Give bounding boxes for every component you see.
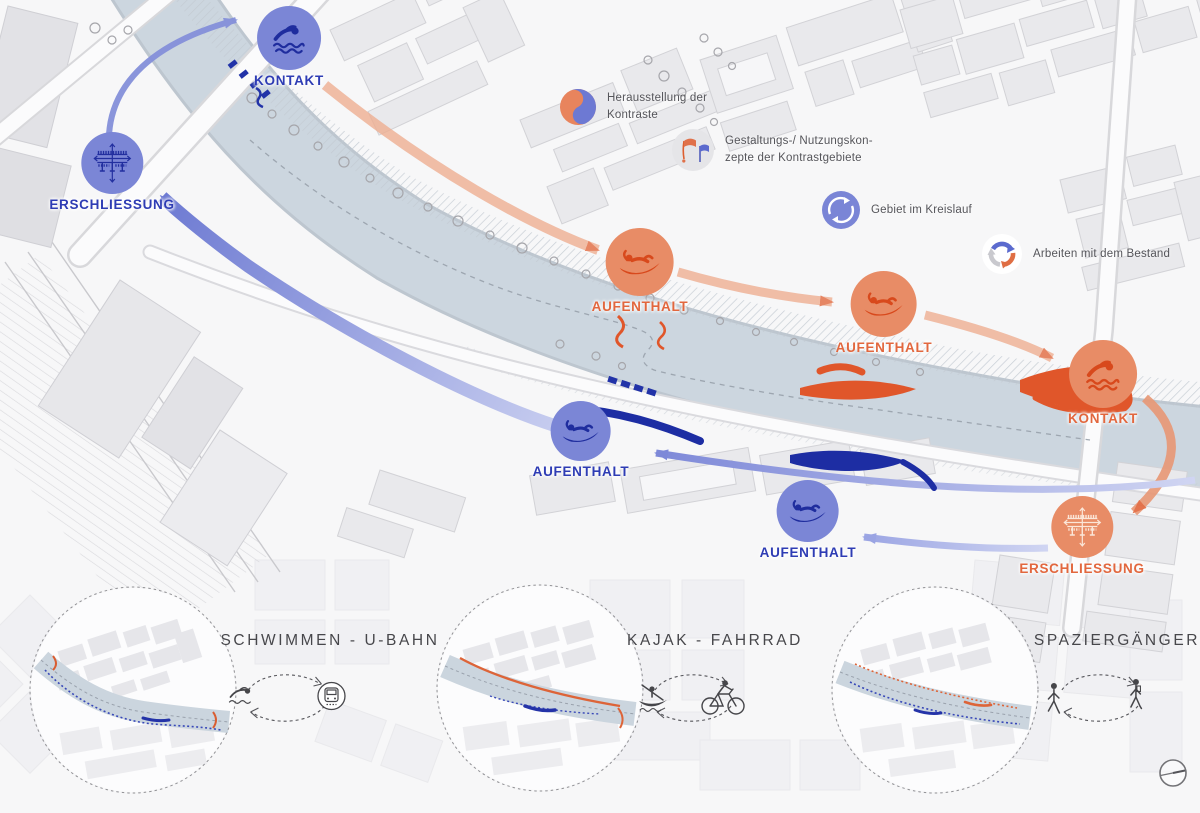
lounger-icon (862, 285, 906, 323)
node-label: AUFENTHALT (533, 464, 630, 479)
legend-text: Gestaltungs-/ Nutzungskon-zepte der Kont… (725, 133, 873, 166)
bridge-icon (90, 141, 134, 185)
node-aufenthalt-orange-2: AUFENTHALT (836, 271, 933, 355)
flags-icon (670, 127, 716, 173)
pair-label: KAJAK - FAHRRAD (627, 632, 803, 650)
node-label: ERSCHLIESSUNG (49, 197, 174, 212)
lounger-icon (617, 242, 663, 282)
swimmer-icon (269, 18, 309, 58)
pair-label: SPAZIERGÄNGER (1034, 632, 1200, 650)
node-label: KONTAKT (254, 73, 324, 88)
bridge-icon (1060, 505, 1104, 549)
contrast-circle-icon (558, 87, 598, 127)
inset-map-schwimmen-ubahn (23, 580, 243, 800)
legend-text: Arbeiten mit dem Bestand (1033, 246, 1170, 263)
legend-item-recycle: Arbeiten mit dem Bestand (980, 232, 1170, 276)
legend-item-cycle: Gebiet im Kreislauf (820, 189, 972, 231)
node-erschliessung-orange: ERSCHLIESSUNG (1019, 496, 1144, 576)
legend-item-flags: Gestaltungs-/ Nutzungskon-zepte der Kont… (670, 127, 873, 173)
legend-item-contrast: Herausstellung derKontraste (558, 87, 707, 127)
ubahn-icon (318, 683, 345, 710)
pair-spaziergaenger: SPAZIERGÄNGER (1034, 632, 1200, 738)
node-label: KONTAKT (1068, 411, 1138, 426)
node-label: AUFENTHALT (592, 299, 689, 314)
lounger-icon (787, 493, 829, 529)
swimmer-icon (1082, 353, 1124, 395)
node-kontakt-blue: KONTAKT (254, 6, 324, 88)
inset-map-kajak-fahrrad (430, 578, 650, 798)
node-aufenthalt-blue-1: AUFENTHALT (533, 401, 630, 479)
swimmer-icon (229, 688, 250, 704)
pair-cycle-icons (1034, 658, 1164, 738)
node-label: ERSCHLIESSUNG (1019, 561, 1144, 576)
kayak-icon (639, 685, 667, 711)
legend-text: Gebiet im Kreislauf (871, 202, 972, 219)
node-label: AUFENTHALT (836, 340, 933, 355)
walker-icon (1048, 683, 1059, 713)
node-aufenthalt-orange-1: AUFENTHALT (592, 228, 689, 314)
pair-label: SCHWIMMEN - U-BAHN (220, 632, 439, 650)
diagram-canvas: KONTAKT ERSCHLIESSUNG (0, 0, 1200, 813)
pair-cycle-icons (220, 658, 350, 738)
recycle-icon (980, 232, 1024, 276)
pair-cycle-icons (627, 658, 757, 738)
lounger-icon (560, 413, 602, 449)
legend-text: Herausstellung derKontraste (607, 90, 707, 123)
node-erschliessung-blue: ERSCHLIESSUNG (49, 132, 174, 212)
inset-map-spaziergaenger (825, 580, 1045, 800)
cycle-circle-icon (820, 189, 862, 231)
node-label: AUFENTHALT (760, 545, 857, 560)
node-kontakt-orange: KONTAKT (1068, 340, 1138, 426)
pair-schwimmen-ubahn: SCHWIMMEN - U-BAHN (220, 632, 439, 738)
node-aufenthalt-blue-2: AUFENTHALT (760, 480, 857, 560)
pair-kajak-fahrrad: KAJAK - FAHRRAD (627, 632, 803, 738)
north-arrow-icon (1154, 754, 1192, 792)
walker-icon (1131, 679, 1142, 709)
